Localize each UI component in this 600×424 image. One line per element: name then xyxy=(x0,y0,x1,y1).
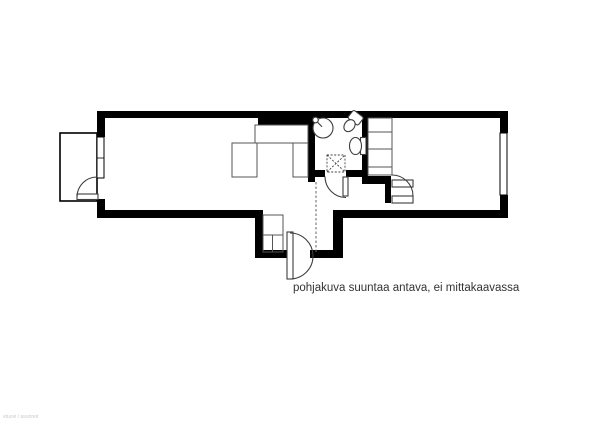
tap-icon xyxy=(313,117,319,123)
wall-top-thick-segment xyxy=(258,118,308,125)
toilet-icon xyxy=(350,138,367,155)
bedroom-door xyxy=(392,175,413,203)
toilet-bowl xyxy=(350,138,362,155)
bedroom-wardrobe xyxy=(368,118,392,175)
wall-bottom-left xyxy=(97,210,263,218)
wall-top xyxy=(97,111,508,118)
wall-left-upper xyxy=(97,111,105,137)
bedroom-wardrobe-outline xyxy=(368,118,392,175)
entrance-door xyxy=(287,232,313,279)
walls xyxy=(97,111,508,258)
bedroom-window xyxy=(500,133,507,195)
floorplan-image: pohjakuva suuntaa antava, ei mittakaavas… xyxy=(0,0,600,424)
table xyxy=(232,143,257,177)
wall-bedroom-door-jamb xyxy=(385,176,391,203)
doors xyxy=(77,175,413,279)
kitchen-counter-side xyxy=(293,143,308,177)
wall-bathroom-bottom-left xyxy=(308,170,325,177)
watermark: etuovi / asunnot xyxy=(3,414,39,420)
hall-wardrobe xyxy=(263,215,283,252)
caption-text: pohjakuva suuntaa antava, ei mittakaavas… xyxy=(293,282,520,294)
balcony-door-leaf xyxy=(77,194,98,200)
washing-machine-reservation xyxy=(327,155,345,172)
kitchen-counter-top xyxy=(255,125,308,143)
balcony-window xyxy=(97,137,104,178)
bathroom-fixtures xyxy=(313,110,366,172)
wall-right-upper xyxy=(500,111,508,133)
windows xyxy=(97,133,507,195)
wall-bathroom-bottom-right xyxy=(346,170,362,177)
bedroom-door-leaf-open xyxy=(392,196,413,203)
bedroom-door-leaf xyxy=(392,180,413,187)
wall-bottom-right xyxy=(333,210,508,218)
wall-hall-bedroom-partition xyxy=(362,176,386,184)
floorplan-page: pohjakuva suuntaa antava, ei mittakaavas… xyxy=(0,0,600,424)
entrance-door-leaf xyxy=(287,232,293,279)
bathroom-door-leaf xyxy=(343,177,348,196)
bathroom-door xyxy=(325,177,348,198)
wall-right-lower xyxy=(500,195,508,218)
